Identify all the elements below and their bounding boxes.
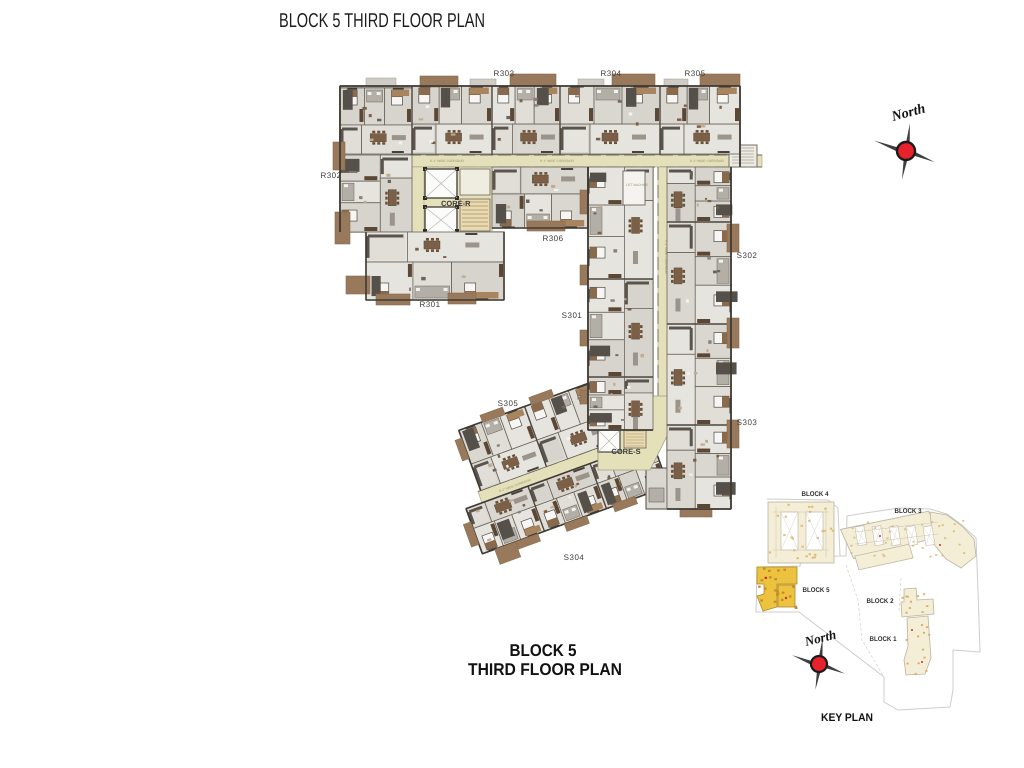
svg-text:BLOCK 4: BLOCK 4	[802, 491, 829, 498]
svg-text:8'-1" WIDE CORRIDOR: 8'-1" WIDE CORRIDOR	[690, 159, 724, 163]
svg-text:R306: R306	[542, 234, 563, 243]
svg-text:BLOCK 5 THIRD FLOOR PLAN: BLOCK 5 THIRD FLOOR PLAN	[279, 10, 485, 32]
svg-text:KEY PLAN: KEY PLAN	[821, 712, 873, 724]
svg-text:BLOCK 5: BLOCK 5	[803, 587, 830, 594]
svg-text:R303: R303	[493, 69, 514, 78]
svg-text:LIFT MACHINE: LIFT MACHINE	[626, 183, 648, 187]
svg-text:S304: S304	[564, 553, 585, 562]
svg-text:R305: R305	[684, 69, 705, 78]
svg-text:BLOCK 2: BLOCK 2	[867, 598, 894, 605]
svg-text:BLOCK 3: BLOCK 3	[895, 508, 922, 515]
svg-text:CORE-S: CORE-S	[611, 447, 640, 456]
svg-text:S301: S301	[562, 311, 583, 320]
svg-text:R301: R301	[419, 300, 440, 309]
svg-text:BLOCK 1: BLOCK 1	[870, 636, 897, 643]
svg-text:8'-1" WIDE CORRIDOR: 8'-1" WIDE CORRIDOR	[430, 159, 464, 163]
svg-text:BLOCK 5: BLOCK 5	[510, 641, 577, 660]
svg-text:8'-1" WIDE CORRIDOR: 8'-1" WIDE CORRIDOR	[540, 159, 574, 163]
svg-text:R302: R302	[320, 171, 341, 180]
svg-text:CORE-R: CORE-R	[441, 199, 471, 208]
svg-text:S305: S305	[498, 399, 519, 408]
svg-text:S302: S302	[737, 251, 758, 260]
svg-text:R304: R304	[600, 69, 621, 78]
svg-text:THIRD FLOOR PLAN: THIRD FLOOR PLAN	[468, 660, 622, 679]
svg-text:S303: S303	[737, 418, 758, 427]
